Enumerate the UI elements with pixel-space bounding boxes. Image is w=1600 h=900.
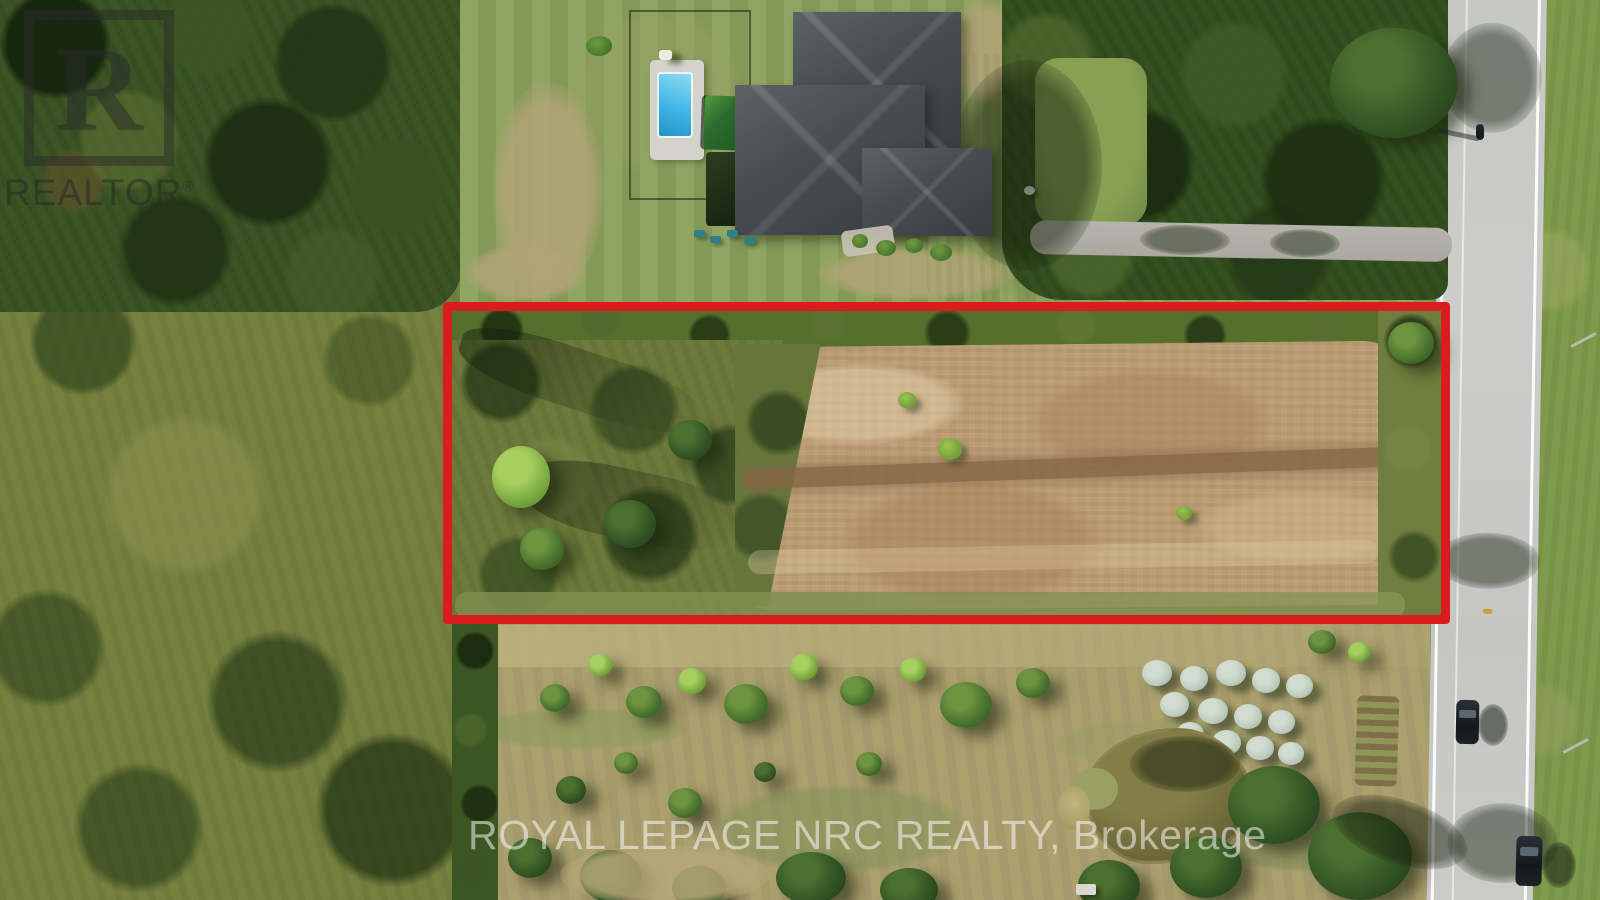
mowed-strip bbox=[468, 625, 1448, 667]
silver-bush bbox=[1268, 710, 1295, 734]
foundation-planting bbox=[852, 234, 868, 248]
tree bbox=[1308, 630, 1336, 654]
realtor-logo-box: R bbox=[24, 10, 174, 166]
tree bbox=[556, 776, 586, 804]
silver-bush bbox=[1278, 742, 1304, 765]
tree bbox=[754, 762, 776, 782]
patio-furniture bbox=[744, 237, 755, 244]
tree bbox=[1330, 28, 1458, 138]
tree bbox=[790, 654, 818, 680]
tree bbox=[840, 676, 874, 706]
tree bbox=[940, 682, 992, 728]
tree bbox=[1348, 642, 1370, 662]
brokerage-watermark: ROYAL LEPAGE NRC REALTY, Brokerage bbox=[468, 812, 1267, 859]
lawn-worn-patch bbox=[466, 244, 586, 302]
silver-bush bbox=[1252, 668, 1280, 693]
patio-furniture bbox=[710, 236, 721, 243]
realtor-watermark: R REALTOR® bbox=[0, 0, 220, 230]
tree bbox=[1016, 668, 1050, 698]
suv bbox=[1456, 700, 1480, 744]
windshield bbox=[1520, 847, 1538, 856]
car bbox=[1515, 836, 1542, 887]
silver-bush bbox=[1142, 660, 1172, 686]
patio-furniture bbox=[727, 230, 738, 237]
realtor-logo-letter: R bbox=[55, 29, 143, 151]
silver-bush bbox=[1286, 674, 1313, 698]
foundation-planting bbox=[905, 238, 923, 253]
vehicle-shadow bbox=[1478, 704, 1508, 746]
windshield bbox=[1460, 710, 1476, 718]
tree bbox=[614, 752, 638, 774]
silver-bush bbox=[1216, 660, 1246, 686]
silver-bush bbox=[1160, 692, 1189, 717]
road-center-dash bbox=[1483, 609, 1492, 614]
registered-mark: ® bbox=[182, 179, 194, 196]
tree bbox=[540, 684, 570, 712]
foundation-planting bbox=[876, 240, 896, 256]
silver-bush bbox=[1234, 704, 1262, 729]
silver-bush bbox=[1180, 666, 1208, 691]
shrub bbox=[586, 36, 612, 56]
vehicle-shadow bbox=[1542, 842, 1576, 888]
equipment bbox=[1076, 884, 1096, 895]
realtor-logo-label: REALTOR® bbox=[4, 172, 214, 214]
tree bbox=[776, 852, 846, 900]
parcel-outline bbox=[443, 302, 1450, 624]
swimming-pool bbox=[657, 72, 693, 138]
aerial-photo: R REALTOR® ROYAL LEPAGE NRC REALTY, Brok… bbox=[0, 0, 1600, 900]
patio-furniture bbox=[694, 230, 705, 237]
tree bbox=[678, 668, 706, 694]
garden-rows bbox=[1354, 695, 1399, 786]
silver-bush bbox=[1246, 736, 1274, 760]
house-roof-garage bbox=[862, 148, 992, 236]
tree-shadow bbox=[1130, 736, 1240, 792]
tree bbox=[856, 752, 882, 776]
tree bbox=[900, 658, 926, 682]
silver-bush bbox=[1198, 698, 1228, 724]
realtor-logo-text: REALTOR bbox=[4, 172, 182, 213]
tree bbox=[626, 686, 662, 718]
pool-side-table bbox=[659, 50, 672, 60]
tree-shadow-on-driveway bbox=[1140, 224, 1231, 256]
tree bbox=[724, 684, 768, 724]
tree-shadow-on-driveway bbox=[1270, 229, 1341, 258]
tree-shadow-on-road bbox=[1436, 532, 1541, 590]
foundation-planting bbox=[930, 244, 952, 261]
tree bbox=[588, 654, 612, 676]
